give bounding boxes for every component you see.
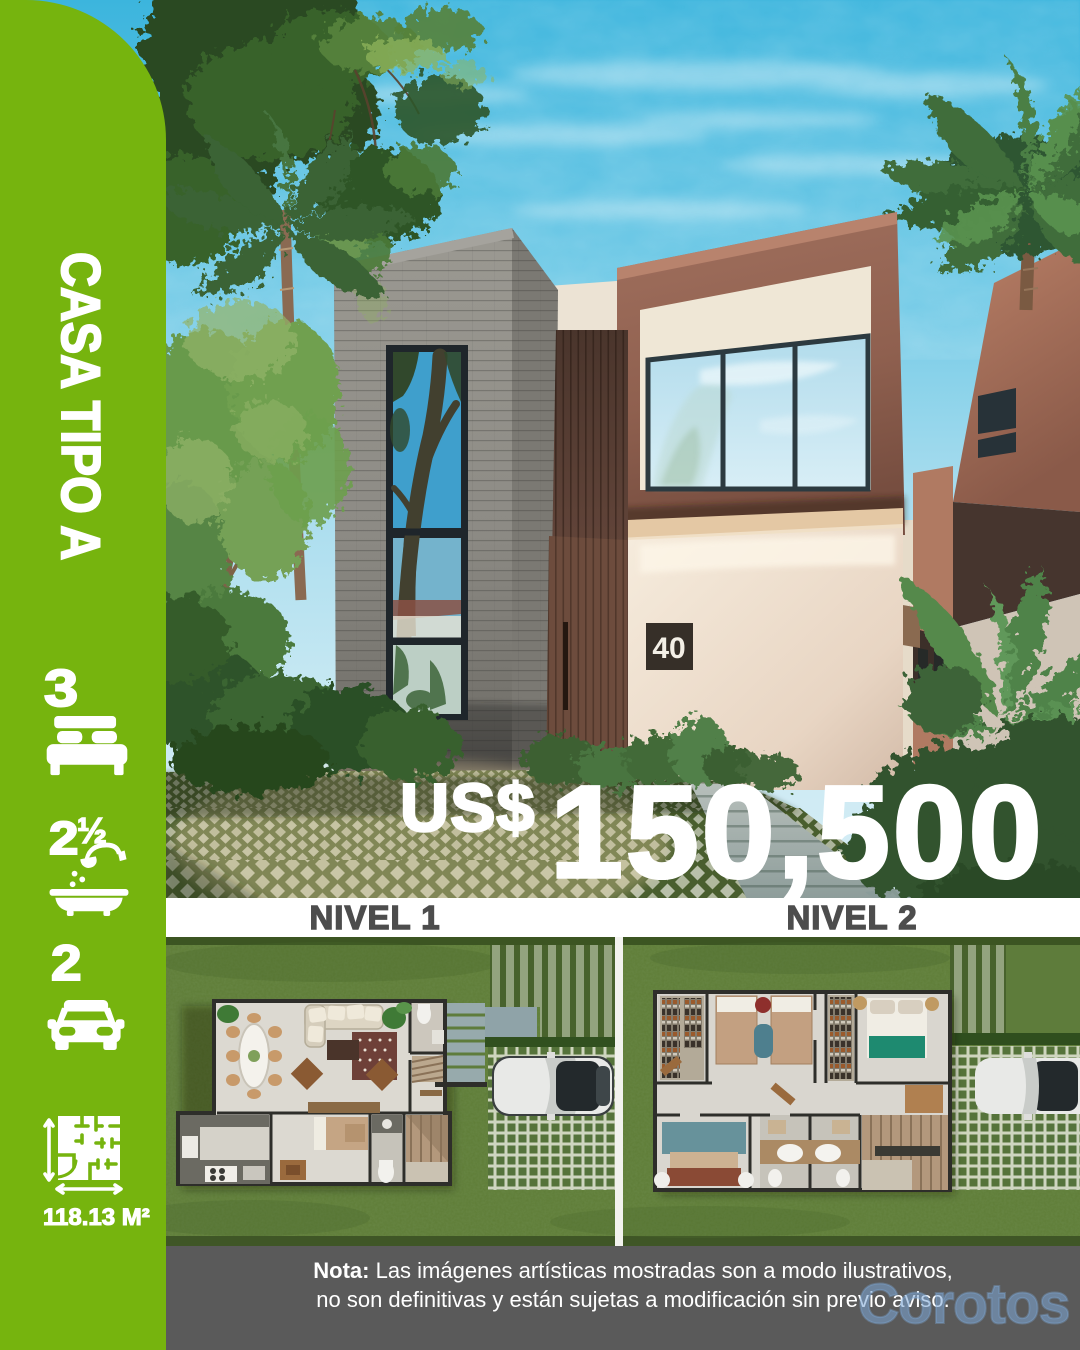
- svg-text:40: 40: [652, 632, 685, 665]
